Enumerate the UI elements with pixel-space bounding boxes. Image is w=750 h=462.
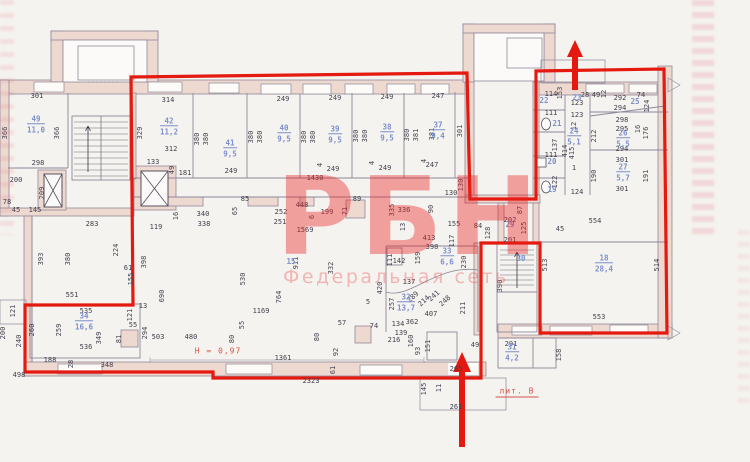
room-label-33: 336,6 xyxy=(440,246,454,266)
dimension-label: 145 xyxy=(29,206,42,214)
dimension-label: 249 xyxy=(277,95,290,103)
dimension-label: 312 xyxy=(165,145,178,153)
dimension-label: 81 xyxy=(115,335,123,343)
room-label-18: 1828,4 xyxy=(595,253,613,273)
dimension-label: 4 xyxy=(316,163,324,167)
dimension-label: 111 xyxy=(386,254,394,267)
red-annotation: Н = 0,97 xyxy=(195,347,242,356)
dimension-label: 292 xyxy=(614,94,627,102)
dimension-label: 448 xyxy=(296,201,309,209)
dimension-label: 211 xyxy=(459,302,467,315)
dimension-label: 413 xyxy=(423,234,436,242)
dimension-label: 145 xyxy=(420,383,428,396)
room-label-20: 20 xyxy=(546,157,557,167)
dimension-label: 764 xyxy=(275,291,283,304)
dimension-label: 176 xyxy=(642,127,650,140)
room-label-39: 399,5 xyxy=(328,124,342,144)
dimension-label: 57 xyxy=(338,319,346,327)
dimension-label: 93 xyxy=(414,347,422,355)
dimension-label: 283 xyxy=(86,220,99,228)
dimension-label: 137 xyxy=(551,139,559,152)
dimension-label: 49 xyxy=(471,341,479,349)
dimension-label: 336 xyxy=(398,206,411,214)
dimension-label: 199 xyxy=(321,208,334,216)
dimension-label: 124 xyxy=(571,188,584,196)
dimension-label: 252 xyxy=(275,208,288,216)
dimension-label: 380 xyxy=(202,133,210,146)
dimension-label: 415 xyxy=(568,147,576,160)
floor-plan-scan: 3013663662982002097845145200121551240498… xyxy=(0,0,750,462)
room-label-25: 25 xyxy=(629,97,640,107)
dimension-label: 16 xyxy=(172,212,180,220)
dimension-label: 335 xyxy=(388,204,396,217)
dimension-label: 294 xyxy=(614,104,627,112)
room-label-19: 19 xyxy=(546,185,557,195)
dimension-label: 190 xyxy=(590,170,598,183)
dimension-label: 249 xyxy=(381,93,394,101)
dimension-label: 380 xyxy=(403,129,411,142)
dimension-label: 301 xyxy=(31,92,44,100)
room-label-30: 30 xyxy=(515,254,526,264)
dimension-label: 257 xyxy=(388,298,396,311)
dimension-label: 398 xyxy=(426,243,439,251)
dimension-label: 181 xyxy=(179,169,192,177)
dimension-label: 259 xyxy=(55,324,63,337)
dimension-label: 380 xyxy=(256,131,264,144)
dimension-label: 49 xyxy=(168,166,176,174)
dimension-label: 249 xyxy=(327,165,340,173)
dimension-label: 249 xyxy=(379,164,392,172)
dimension-label: 390 xyxy=(496,280,504,293)
dimension-label: 340 xyxy=(197,210,210,218)
dimension-label: 298 xyxy=(616,116,629,124)
dimension-label: 151 xyxy=(424,340,432,353)
dimension-label: 329 xyxy=(136,127,144,140)
dimension-label: 61 xyxy=(124,264,132,272)
dimension-label: 6 xyxy=(308,215,316,219)
dimension-label: 240 xyxy=(15,335,23,348)
room-label-15: 15 xyxy=(285,257,296,267)
dimension-label: 191 xyxy=(642,170,650,183)
dimension-label: 4 xyxy=(420,159,428,163)
dimension-label: 13 xyxy=(139,302,147,310)
dimension-label: 420 xyxy=(376,282,384,295)
dimension-label: 134 xyxy=(392,320,405,328)
dimension-label: 1430 xyxy=(307,174,324,182)
dimension-label: 247 xyxy=(432,92,445,100)
dimension-label: 125 xyxy=(520,222,528,235)
dimension-label: 224 xyxy=(112,244,120,257)
room-label-40: 409,5 xyxy=(277,123,291,143)
dimension-label: 11 xyxy=(435,384,443,392)
room-label-26: 265,5 xyxy=(616,128,630,148)
dimension-label: 298 xyxy=(32,159,45,167)
dimension-label: 123 xyxy=(571,111,584,119)
dimension-label: 366 xyxy=(53,127,61,140)
dimension-label: 133 xyxy=(147,158,160,166)
dimension-label: 249 xyxy=(329,94,342,102)
dimension-label: 128 xyxy=(484,227,492,240)
dimension-label: 200 xyxy=(10,176,23,184)
dimension-label: 111 xyxy=(545,109,558,117)
dimension-label: 153 xyxy=(556,87,564,100)
dimension-label: 216 xyxy=(388,336,401,344)
dimension-label: 16 xyxy=(634,125,642,133)
dimension-label: 1361 xyxy=(275,354,292,362)
dimension-label: 314 xyxy=(162,96,175,104)
dimension-label: 159 xyxy=(414,252,422,265)
dimension-label: 80 xyxy=(313,333,321,341)
dimension-label: 4 xyxy=(368,161,376,165)
dimension-label: 301 xyxy=(616,185,629,193)
dimension-label: 338 xyxy=(198,220,211,228)
dimension-label: 366 xyxy=(1,127,9,140)
room-label-32: 3213,7 xyxy=(397,292,415,312)
dimension-label: 13 xyxy=(399,223,407,231)
dimension-label: 209 xyxy=(38,187,46,200)
dimension-label: 265 xyxy=(450,365,463,373)
dimension-label: 251 xyxy=(274,218,287,226)
dimension-label: 119 xyxy=(150,223,163,231)
dimension-label: 1169 xyxy=(253,307,270,315)
dimension-label: 155 xyxy=(448,220,461,228)
room-label-34: 3416,6 xyxy=(75,311,93,331)
dimension-label: 45 xyxy=(12,206,20,214)
dimension-label: 61 xyxy=(329,366,337,374)
dimension-label: 200 xyxy=(0,327,7,340)
room-label-29: 29 xyxy=(504,220,515,230)
dimension-label: 78 xyxy=(3,198,11,206)
dimension-label: 513 xyxy=(541,259,549,272)
dimension-label: 65 xyxy=(231,207,239,215)
dimension-label: 92 xyxy=(332,348,340,356)
dimension-label: 142 xyxy=(393,257,406,265)
dimension-label: 393 xyxy=(37,253,45,266)
dimension-label: 188 xyxy=(44,356,57,364)
dimension-label: 160 xyxy=(407,335,415,348)
red-annotation: лит. В xyxy=(496,387,539,398)
dimension-label: 380 xyxy=(64,253,72,266)
dimension-label: 230 xyxy=(460,256,468,269)
dimension-label: 551 xyxy=(66,291,79,299)
room-label-21: 21 xyxy=(551,119,562,129)
dimension-label: 690 xyxy=(158,290,166,303)
dimension-label: 5 xyxy=(366,298,370,306)
dimension-label: 381 xyxy=(412,129,420,142)
dimension-label: 84 xyxy=(474,222,482,230)
dimension-label: 536 xyxy=(80,343,93,351)
room-label-24: 245,1 xyxy=(567,126,581,146)
room-label-42: 4211,2 xyxy=(160,116,178,136)
dimension-label: 124 xyxy=(643,100,651,113)
dimension-label: 362 xyxy=(406,318,419,326)
dimension-label: 380 xyxy=(352,130,360,143)
dimension-label: 332 xyxy=(327,262,335,275)
label-layer: 3013663662982002097845145200121551240498… xyxy=(0,0,750,462)
dimension-label: 380 xyxy=(361,130,369,143)
dimension-label: 554 xyxy=(589,217,602,225)
dimension-label: 398 xyxy=(140,256,148,269)
dimension-label: 212 xyxy=(590,130,598,143)
room-label-22: 22 xyxy=(538,96,549,106)
dimension-label: 55 xyxy=(238,321,246,329)
dimension-label: 380 xyxy=(309,131,317,144)
dimension-label: 130 xyxy=(457,179,465,192)
dimension-label: 85 xyxy=(241,195,249,203)
dimension-label: 2323 xyxy=(303,377,320,385)
room-label-38: 389,5 xyxy=(380,122,394,142)
dimension-label: 553 xyxy=(593,313,606,321)
dimension-label: 514 xyxy=(653,259,661,272)
dimension-label: 349 xyxy=(95,332,103,345)
dimension-label: 45 xyxy=(556,225,564,233)
room-label-41: 419,5 xyxy=(223,138,237,158)
room-label-27: 275,7 xyxy=(616,162,630,182)
dimension-label: 155 xyxy=(127,273,135,286)
dimension-label: 261 xyxy=(450,403,463,411)
dimension-label: 530 xyxy=(239,273,247,286)
dimension-label: 380 xyxy=(247,131,255,144)
dimension-label: 294 xyxy=(141,327,149,340)
dimension-label: 137 xyxy=(403,278,416,286)
dimension-label: 380 xyxy=(300,131,308,144)
dimension-label: 12 xyxy=(600,90,608,98)
dimension-label: 498 xyxy=(13,371,26,379)
dimension-label: 249 xyxy=(225,167,238,175)
dimension-label: 74 xyxy=(370,322,378,330)
room-label-37: 379,4 xyxy=(431,120,445,140)
dimension-label: 130 xyxy=(445,189,458,197)
dimension-label: 87 xyxy=(516,206,524,214)
dimension-label: 503 xyxy=(152,333,165,341)
dimension-label: 121 xyxy=(126,309,134,322)
dimension-label: 28 xyxy=(67,360,75,368)
dimension-label: 55 xyxy=(129,321,137,329)
dimension-label: 1 xyxy=(572,164,576,172)
dimension-label: 89 xyxy=(353,195,361,203)
dimension-label: 49 xyxy=(592,91,600,99)
dimension-label: 80 xyxy=(228,335,236,343)
dimension-label: 348 xyxy=(101,361,114,369)
dimension-label: 480 xyxy=(185,333,198,341)
dimension-label: 407 xyxy=(425,310,438,318)
dimension-label: 1569 xyxy=(297,226,314,234)
room-label-23: 23 xyxy=(571,93,582,103)
dimension-label: 380 xyxy=(193,133,201,146)
room-label-49: 4911,0 xyxy=(27,114,45,134)
dimension-label: 71 xyxy=(341,207,349,215)
dimension-label: 260 xyxy=(28,324,36,337)
dimension-label: 301 xyxy=(456,125,464,138)
dimension-label: 201 xyxy=(504,236,517,244)
dimension-label: 158 xyxy=(555,349,563,362)
dimension-label: 121 xyxy=(9,305,17,318)
dimension-label: 90 xyxy=(427,205,435,213)
room-label-31: 314,2 xyxy=(505,342,519,362)
